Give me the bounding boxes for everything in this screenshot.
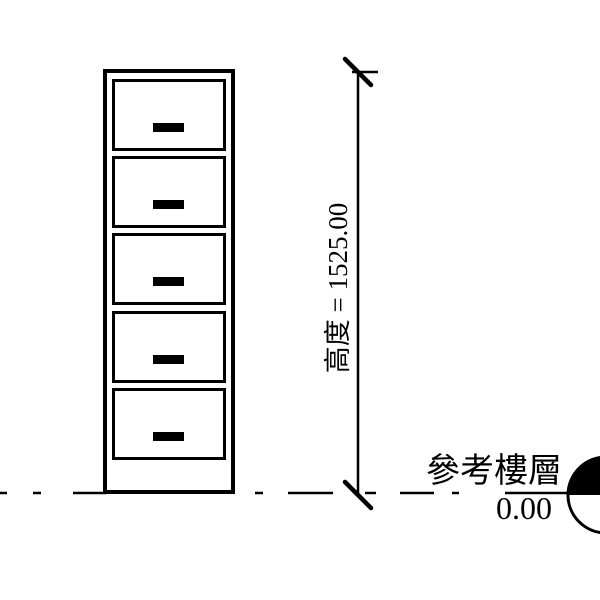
drawer (112, 311, 226, 383)
drawing-canvas: 高度 = 1525.00 參考樓層 0.00 (0, 0, 600, 600)
drawer (112, 156, 226, 228)
level-marker-icon (568, 457, 600, 533)
cabinet (103, 69, 235, 494)
reference-level-label: 參考樓層 (426, 452, 566, 492)
dimension-text: 高度 = 1525.00 (323, 188, 353, 388)
drawer (112, 233, 226, 305)
drawer-handle (153, 200, 184, 209)
drawer-handle (153, 355, 184, 364)
drawer-handle (153, 123, 184, 132)
drawer-handle (153, 277, 184, 286)
drawer-handle (153, 432, 184, 441)
drawer (112, 79, 226, 151)
elevation-value: 0.00 (464, 492, 552, 524)
drawer (112, 388, 226, 460)
